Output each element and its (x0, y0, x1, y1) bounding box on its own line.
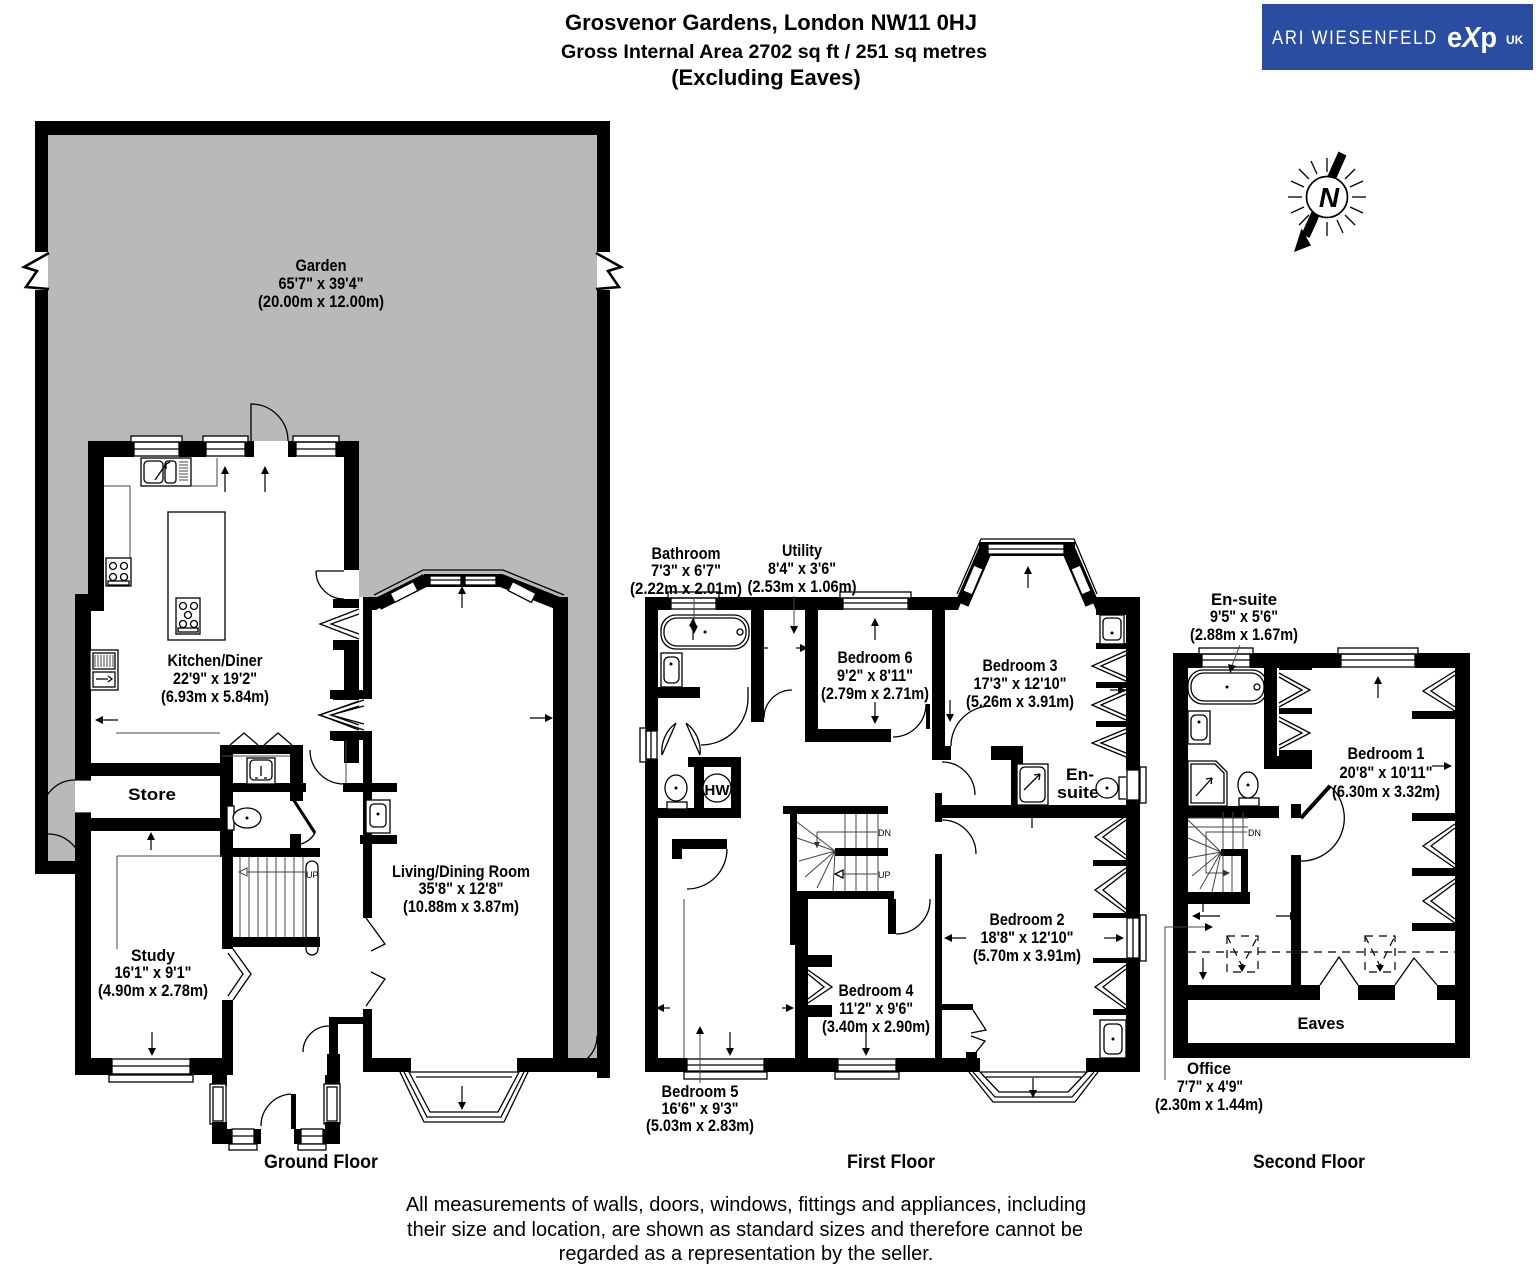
svg-text:Gross Internal Area 2702 sq ft: Gross Internal Area 2702 sq ft / 251 sq … (561, 41, 987, 63)
svg-text:Bedroom 1: Bedroom 1 (1348, 744, 1425, 763)
svg-text:(2.79m x 2.71m): (2.79m x 2.71m) (821, 684, 929, 703)
svg-text:(6.93m x 5.84m): (6.93m x 5.84m) (161, 687, 269, 706)
svg-text:DN: DN (878, 828, 891, 838)
svg-text:65'7" x 39'4": 65'7" x 39'4" (279, 274, 364, 293)
svg-text:(6.30m x 3.32m): (6.30m x 3.32m) (1332, 782, 1440, 801)
svg-text:8'4" x 3'6": 8'4" x 3'6" (768, 559, 836, 578)
svg-text:Bedroom 3: Bedroom 3 (983, 656, 1058, 675)
svg-text:20'8" x 10'11": 20'8" x 10'11" (1340, 763, 1433, 782)
svg-text:(2.30m x 1.44m): (2.30m x 1.44m) (1155, 1095, 1263, 1114)
svg-text:eXp: eXp (1447, 22, 1497, 54)
svg-text:their size and location, are s: their size and location, are shown as st… (407, 1219, 1083, 1241)
svg-text:7'3" x 6'7": 7'3" x 6'7" (651, 561, 721, 580)
svg-text:Kitchen/Diner: Kitchen/Diner (168, 651, 263, 670)
svg-text:(2.53m x 1.06m): (2.53m x 1.06m) (748, 577, 857, 596)
svg-text:(4.90m x 2.78m): (4.90m x 2.78m) (98, 981, 208, 1000)
svg-text:ARI WIESENFELD: ARI WIESENFELD (1272, 28, 1438, 49)
svg-text:(5.26m x 3.91m): (5.26m x 3.91m) (966, 692, 1074, 711)
svg-text:16'1" x 9'1": 16'1" x 9'1" (115, 963, 192, 982)
svg-text:(20.00m x 12.00m): (20.00m x 12.00m) (258, 292, 384, 311)
svg-text:First Floor: First Floor (847, 1152, 936, 1173)
svg-text:En-: En- (1066, 765, 1094, 784)
svg-text:Store: Store (128, 785, 176, 804)
svg-text:DN: DN (1248, 828, 1261, 838)
svg-text:UP: UP (878, 870, 891, 880)
svg-text:Ground Floor: Ground Floor (264, 1152, 379, 1173)
svg-text:(10.88m x 3.87m): (10.88m x 3.87m) (403, 897, 519, 916)
svg-text:17'3" x 12'10": 17'3" x 12'10" (974, 674, 1067, 693)
svg-text:Utility: Utility (782, 541, 822, 560)
svg-text:Bedroom 4: Bedroom 4 (839, 981, 914, 1000)
svg-text:regarded as a representation b: regarded as a representation by the sell… (559, 1243, 934, 1265)
svg-text:Garden: Garden (296, 256, 347, 275)
svg-text:(2.22m x 2.01m): (2.22m x 2.01m) (630, 579, 742, 598)
svg-text:(Excluding Eaves): (Excluding Eaves) (671, 65, 861, 90)
svg-text:11'2" x 9'6": 11'2" x 9'6" (839, 999, 913, 1018)
svg-text:(3.40m x 2.90m): (3.40m x 2.90m) (822, 1017, 930, 1036)
svg-text:18'8" x 12'10": 18'8" x 12'10" (981, 928, 1074, 947)
svg-text:9'2" x 8'11": 9'2" x 8'11" (837, 666, 913, 685)
svg-text:suite: suite (1057, 783, 1099, 802)
svg-text:Eaves: Eaves (1298, 1014, 1345, 1033)
svg-text:N: N (1319, 182, 1340, 213)
svg-text:(5.70m x 3.91m): (5.70m x 3.91m) (973, 946, 1081, 965)
svg-text:HW: HW (705, 782, 731, 799)
svg-text:UK: UK (1506, 33, 1524, 47)
svg-text:Grosvenor Gardens, London NW11: Grosvenor Gardens, London NW11 0HJ (565, 10, 977, 35)
svg-text:9'5" x 5'6": 9'5" x 5'6" (1210, 607, 1278, 626)
svg-text:7'7" x 4'9": 7'7" x 4'9" (1177, 1077, 1243, 1096)
svg-text:UP: UP (306, 870, 319, 880)
svg-text:35'8" x 12'8": 35'8" x 12'8" (419, 879, 504, 898)
svg-text:22'9" x 19'2": 22'9" x 19'2" (173, 669, 257, 688)
svg-text:Bedroom 2: Bedroom 2 (990, 910, 1065, 929)
svg-text:All measurements of walls, doo: All measurements of walls, doors, window… (406, 1194, 1086, 1216)
svg-text:Second Floor: Second Floor (1253, 1152, 1366, 1173)
svg-text:(2.88m x 1.67m): (2.88m x 1.67m) (1190, 625, 1298, 644)
svg-text:(5.03m x 2.83m): (5.03m x 2.83m) (646, 1116, 754, 1135)
svg-text:Bedroom 6: Bedroom 6 (838, 648, 913, 667)
svg-text:Office: Office (1187, 1059, 1231, 1078)
